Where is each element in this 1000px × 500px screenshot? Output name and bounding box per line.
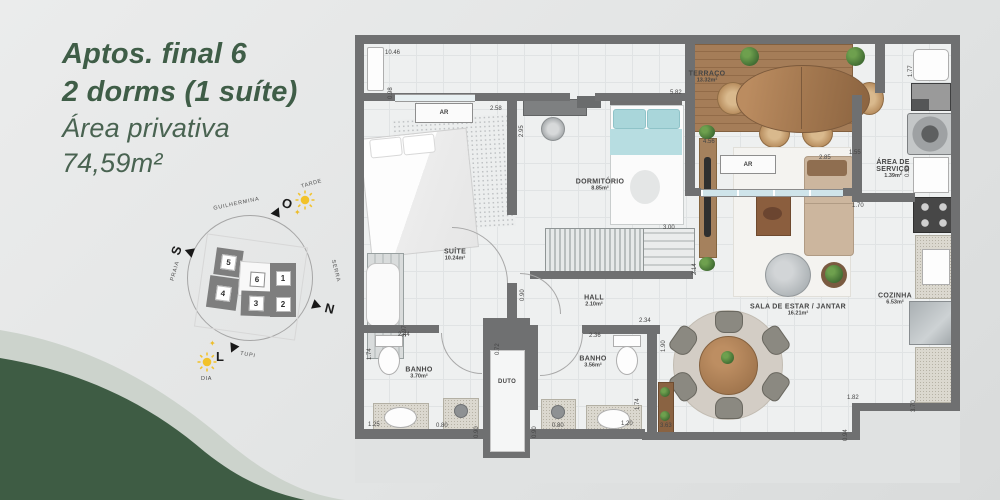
dimension-label: 1.74 bbox=[635, 398, 641, 410]
apartment-floorplan-page: Aptos. final 6 2 dorms (1 suíte) Área pr… bbox=[0, 0, 1000, 500]
dimension-label: 2.34 bbox=[639, 318, 651, 324]
dimension-label: 0.90 bbox=[532, 426, 538, 438]
block-number: 1 bbox=[276, 271, 291, 286]
headline: Aptos. final 6 2 dorms (1 suíte) Área pr… bbox=[62, 36, 297, 182]
dimension-label: 0.90 bbox=[905, 165, 911, 177]
dimension-label: 0.90 bbox=[474, 426, 480, 438]
dimension-label: 2.14 bbox=[692, 263, 698, 275]
dimension-label: 1.77 bbox=[908, 65, 914, 77]
site-block-2: 2 bbox=[270, 292, 296, 317]
dimension-label: 2.58 bbox=[490, 106, 502, 112]
dimension-label: 2.36 bbox=[589, 333, 601, 339]
dimension-label: 2.95 bbox=[519, 125, 525, 137]
dimension-label: 0.98 bbox=[388, 87, 394, 99]
site-block-3: 3 bbox=[241, 290, 272, 316]
headline-line2: 2 dorms (1 suíte) bbox=[62, 74, 297, 112]
headline-line4: 74,59m² bbox=[62, 146, 297, 181]
dimension-label: 1.82 bbox=[847, 395, 859, 401]
cardinal-L: L bbox=[216, 349, 224, 364]
dimension-label: 3.63 bbox=[660, 423, 672, 429]
block-number: 3 bbox=[248, 296, 264, 312]
sun-label-dia: DIA bbox=[201, 376, 212, 382]
dimension-labels: 10.460.982.582.955.824.563.002.141.771.5… bbox=[355, 35, 980, 483]
headline-line1: Aptos. final 6 bbox=[62, 36, 297, 74]
site-block-4: 4 bbox=[206, 275, 240, 311]
block-number: 6 bbox=[249, 271, 265, 287]
dimension-label: 1.70 bbox=[852, 203, 864, 209]
block-number: 4 bbox=[215, 285, 232, 302]
dimension-label: 0.94 bbox=[843, 429, 849, 441]
block-number: 2 bbox=[276, 297, 291, 312]
dimension-label: 4.56 bbox=[703, 139, 715, 145]
dimension-label: 1.25 bbox=[368, 422, 380, 428]
dimension-label: 0.80 bbox=[552, 423, 564, 429]
dimension-label: 1.90 bbox=[661, 340, 667, 352]
sun-icon-day bbox=[197, 352, 217, 372]
dimension-label: 0.72 bbox=[495, 343, 501, 355]
dimension-label: 1.74 bbox=[367, 348, 373, 360]
dimension-label: 10.46 bbox=[385, 50, 400, 56]
site-block-1: 1 bbox=[270, 263, 296, 293]
sun-icon-afternoon bbox=[295, 190, 315, 210]
floor-plan: AR AR bbox=[355, 35, 980, 483]
dimension-label: 3.97 bbox=[402, 325, 408, 337]
dimension-label: 1.20 bbox=[621, 421, 633, 427]
dimension-label: 0.80 bbox=[436, 423, 448, 429]
headline-line3: Área privativa bbox=[62, 111, 297, 146]
dimension-label: 0.90 bbox=[520, 289, 526, 301]
sparkle-icon: ✦ bbox=[209, 339, 216, 348]
dimension-label: 3.70 bbox=[911, 400, 917, 412]
dimension-label: 1.55 bbox=[849, 150, 861, 156]
block-number: 5 bbox=[220, 254, 237, 271]
dimension-label: 2.85 bbox=[819, 155, 831, 161]
sparkle-icon: ✦ bbox=[294, 208, 301, 217]
dimension-label: 5.82 bbox=[670, 90, 682, 96]
dimension-label: 3.00 bbox=[663, 225, 675, 231]
